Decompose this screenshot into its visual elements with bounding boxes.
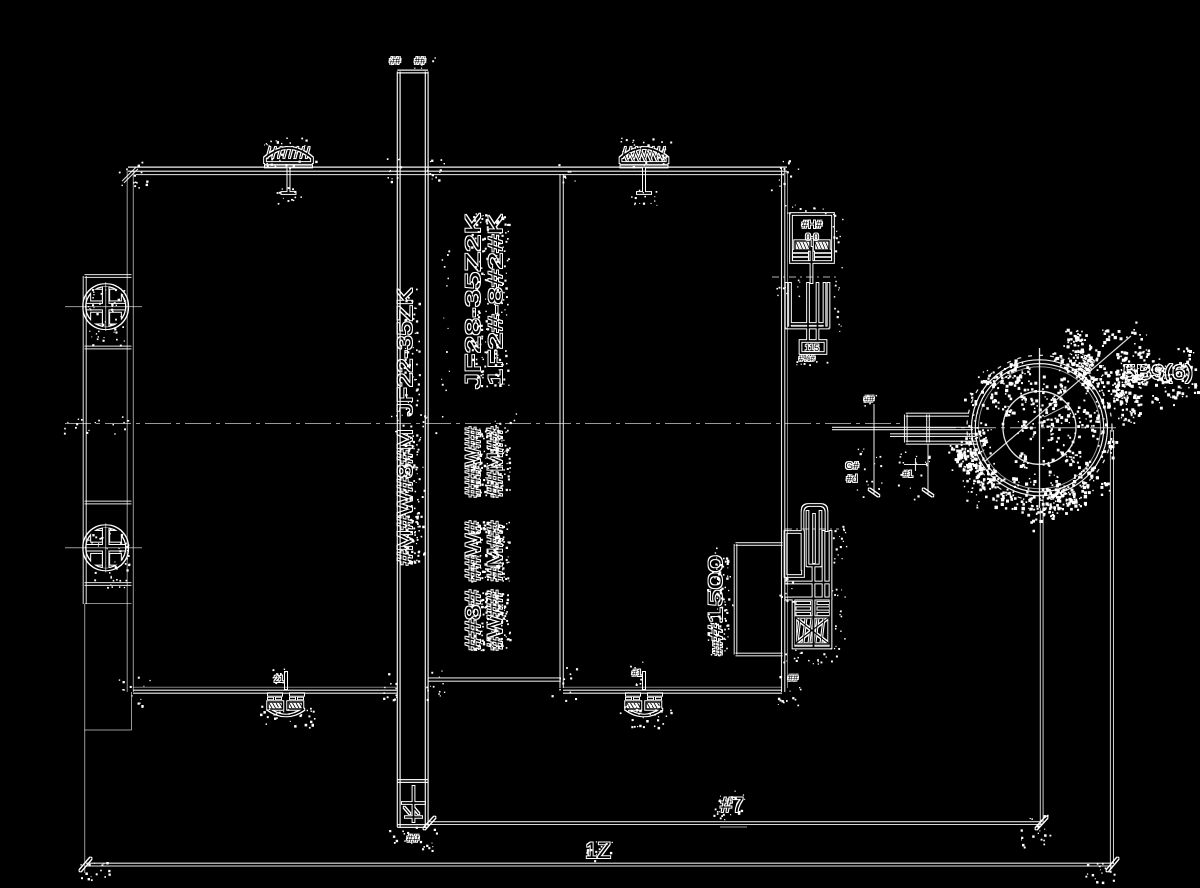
svg-text:#H#: #H# bbox=[802, 219, 823, 231]
svg-text:##: ## bbox=[389, 56, 401, 67]
svg-text:##: ## bbox=[864, 394, 874, 404]
svg-text:##: ## bbox=[788, 673, 798, 683]
svg-text:#d: #d bbox=[846, 474, 857, 485]
svg-text:##: ## bbox=[414, 56, 426, 67]
svg-text:##: ## bbox=[710, 640, 725, 655]
svg-text:115: 115 bbox=[805, 343, 819, 353]
svg-text:#M#W#8#M: #M#W#8#M bbox=[394, 429, 417, 565]
svg-text:0-0: 0-0 bbox=[805, 232, 818, 242]
svg-text:G#: G# bbox=[845, 461, 859, 472]
svg-text:##: ## bbox=[407, 833, 420, 845]
svg-text:#1500: #1500 bbox=[706, 555, 727, 641]
